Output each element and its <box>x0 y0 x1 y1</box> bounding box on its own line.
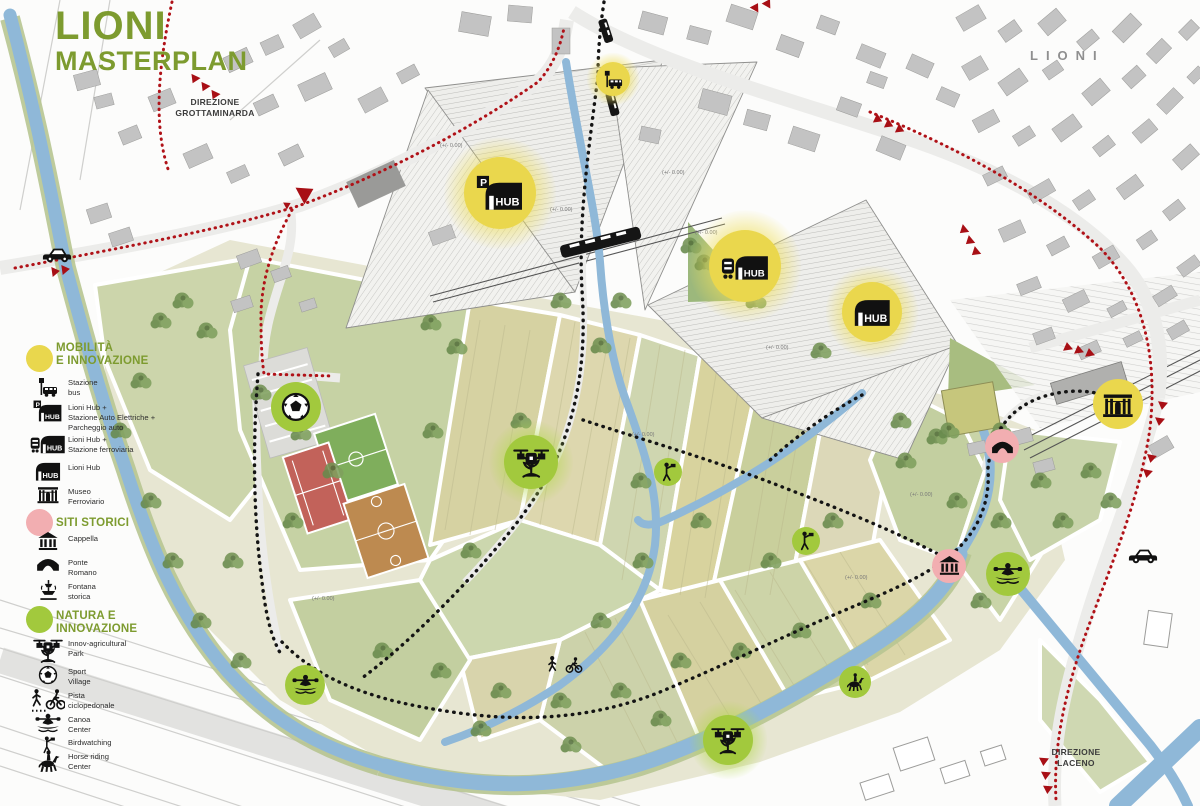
title-line2: MASTERPLAN <box>55 48 248 75</box>
marker-ponte-romano[interactable] <box>985 429 1019 463</box>
svg-text:HUB: HUB <box>495 196 519 208</box>
elevation-label: (+/- 0.00) <box>440 143 462 149</box>
elevation-label: (+/- 0.00) <box>632 432 654 438</box>
marker-lioni-hub-parcheggio[interactable]: PHUB <box>464 157 536 229</box>
elevation-label: (+/- 0.00) <box>845 575 867 581</box>
title-line1: LIONI <box>55 6 248 46</box>
label-direzione-grottaminarda: DIREZIONE GROTTAMINARDA <box>160 97 270 118</box>
marker-stazione-bus[interactable] <box>596 62 630 96</box>
svg-text:P: P <box>480 178 487 189</box>
elevation-label: (+/- 0.00) <box>662 170 684 176</box>
elevation-label: (+/- 0.00) <box>766 345 788 351</box>
elevation-label: (+/- 0.00) <box>312 596 334 602</box>
marker-cappella[interactable] <box>932 549 966 583</box>
marker-innov-agricultural-park-1[interactable] <box>504 435 558 489</box>
marker-car-route-west[interactable] <box>41 236 73 268</box>
marker-museo-ferroviario[interactable] <box>1093 379 1143 429</box>
marker-car-route-east[interactable] <box>1127 537 1159 569</box>
marker-horse-riding-center[interactable] <box>839 666 871 698</box>
marker-innov-agricultural-park-2[interactable] <box>703 715 753 765</box>
lioni-masterplan-page: { "title": {"line1": "LIONI", "line2": "… <box>0 0 1200 806</box>
elevation-label: (+/- 0.00) <box>910 492 932 498</box>
marker-birdwatching-2[interactable] <box>792 527 820 555</box>
marker-lioni-hub-ferroviaria[interactable]: HUB <box>709 230 781 302</box>
masterplan-title: LIONI MASTERPLAN <box>55 6 248 75</box>
svg-text:HUB: HUB <box>743 268 764 279</box>
masterplan-map <box>0 0 1200 806</box>
marker-lioni-hub[interactable]: HUB <box>842 282 902 342</box>
marker-birdwatching-1[interactable] <box>654 458 682 486</box>
label-town-lioni: LIONI <box>1030 48 1105 63</box>
label-direzione-laceno: DIREZIONE LACENO <box>1030 747 1122 768</box>
marker-canoa-center-1[interactable] <box>285 665 325 705</box>
svg-text:HUB: HUB <box>864 313 887 325</box>
marker-canoa-center-2[interactable] <box>986 552 1030 596</box>
marker-sport-village[interactable] <box>271 382 321 432</box>
